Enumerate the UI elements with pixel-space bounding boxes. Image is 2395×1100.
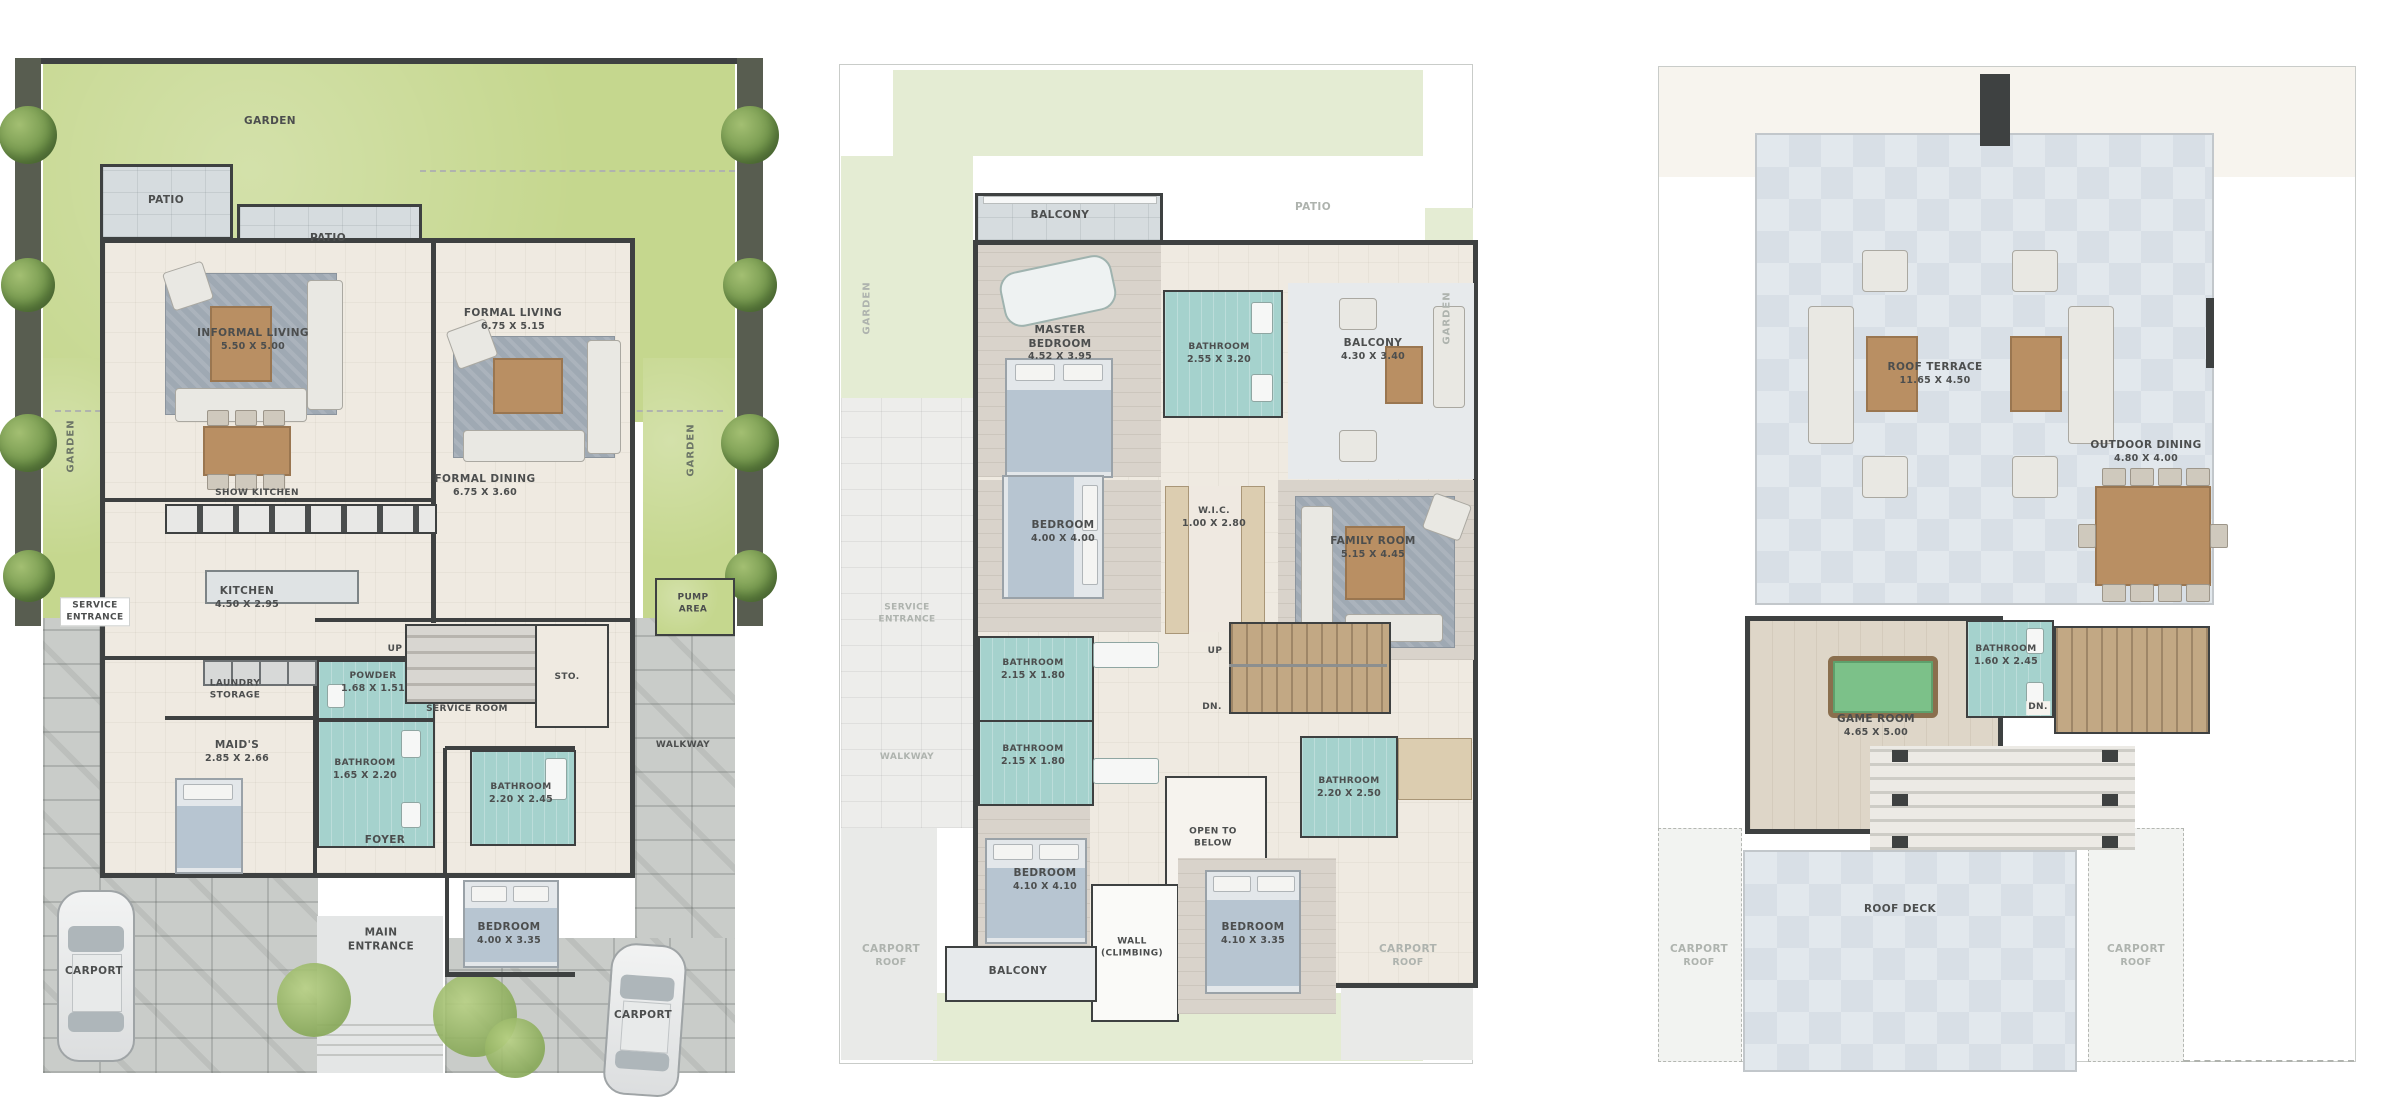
pillow (993, 844, 1033, 860)
label-bathroom-roof: BATHROOM1.60 X 2.45 (1973, 644, 2039, 668)
vanity (1093, 758, 1159, 784)
bush (485, 1018, 545, 1078)
chair (2158, 468, 2182, 486)
label-wic: W.I.C.1.00 X 2.80 (1182, 506, 1246, 530)
tree (3, 550, 55, 602)
label-carport-roof-left: CARPORTROOF (1667, 943, 1731, 969)
label-carport-roof-left: CARPORTROOF (856, 943, 926, 969)
label-master-bathroom: BATHROOM2.55 X 3.20 (1187, 342, 1251, 366)
pillow (1063, 364, 1103, 381)
walkway-right (635, 618, 735, 943)
balcony-railing (983, 196, 1157, 204)
outdoor-dining-table (2095, 486, 2211, 586)
floor-plan-ground: GARDEN GARDEN GARDEN PATIO PATIO INFORMA… (15, 58, 763, 1083)
show-kitchen-counter (165, 504, 437, 534)
label-carport-roof-right: CARPORTROOF (1373, 943, 1443, 969)
coffee-table (493, 358, 563, 414)
chair (2130, 468, 2154, 486)
pillow (1213, 876, 1251, 892)
label-carport-roof-right: CARPORTROOF (2104, 943, 2168, 969)
pergola-post (1892, 836, 1908, 848)
sofa (463, 430, 585, 462)
stairs-first (1229, 622, 1391, 714)
label-wall-climbing: WALL (CLIMBING) (1097, 936, 1167, 959)
tree (721, 414, 779, 472)
wall-stub (2206, 298, 2214, 368)
label-bedroom-left: BEDROOM4.00 X 4.00 (1031, 519, 1095, 545)
tree (723, 258, 777, 312)
label-pump-area: PUMP AREA (669, 592, 717, 615)
chair (2186, 468, 2210, 486)
label-garden-left: GARDEN (66, 419, 77, 472)
label-foyer: FOYER (365, 834, 406, 848)
billiard-table (1828, 656, 1938, 718)
rear-window (614, 1050, 670, 1072)
stairs-up (405, 624, 537, 704)
pergola-post (2102, 836, 2118, 848)
label-garden-ghost-left: GARDEN (862, 281, 873, 334)
pillow (1015, 364, 1055, 381)
blanket (177, 806, 241, 868)
label-up: UP (388, 644, 403, 656)
label-main-entrance: MAIN ENTRANCE (336, 926, 426, 953)
label-family-room: FAMILY ROOM5.15 X 4.45 (1330, 535, 1416, 561)
label-informal-living: INFORMAL LIVING5.50 X 5.00 (197, 327, 309, 353)
vanity (1093, 642, 1159, 668)
pergola-post (2102, 750, 2118, 762)
label-show-kitchen: SHOW KITCHEN (215, 488, 299, 500)
car-roof (72, 954, 121, 1012)
label-sto: STO. (554, 672, 579, 684)
label-formal-living: FORMAL LIVING6.75 X 5.15 (464, 307, 562, 333)
pillow (1257, 876, 1295, 892)
label-garden-ghost-right: GARDEN (1442, 291, 1453, 344)
wall (443, 748, 447, 876)
label-balcony-bottom: BALCONY (989, 965, 1048, 979)
label-balcony-top: BALCONY (1031, 209, 1090, 223)
label-bedroom-bottom-left: BEDROOM4.10 X 4.10 (1013, 867, 1077, 893)
pillow (183, 784, 233, 800)
label-bathroom-right: BATHROOM2.20 X 2.50 (1317, 776, 1381, 800)
sofa (587, 340, 621, 454)
chair (2102, 468, 2126, 486)
chair (2078, 524, 2096, 548)
label-kitchen: KITCHEN4.50 X 2.95 (215, 585, 279, 611)
label-garden-right: GARDEN (686, 423, 697, 476)
label-roof-deck: ROOF DECK (1864, 903, 1936, 917)
label-maids-bathroom: BATHROOM1.65 X 2.20 (333, 758, 397, 782)
stairs-roof (2054, 626, 2210, 734)
windshield (619, 974, 675, 1002)
label-bathroom-2: BATHROOM2.15 X 1.80 (1001, 744, 1065, 768)
tree (0, 106, 57, 164)
floor-plan-first: BALCONY PATIO GARDEN GARDEN SERVICE ENTR… (833, 58, 1480, 1080)
blanket (1007, 390, 1111, 472)
label-master-bedroom: MASTER BEDROOM4.52 X 3.95 (1015, 324, 1105, 364)
label-bedroom-ground: BEDROOM4.00 X 3.35 (477, 921, 541, 947)
pergola-deck (1870, 746, 2135, 850)
label-dn-roof: DN. (2026, 701, 2050, 715)
sofa (1301, 506, 1333, 628)
property-dashed-line-2 (420, 170, 735, 172)
label-outdoor-dining: OUTDOOR DINING4.80 X 4.00 (2090, 439, 2201, 465)
toilet (1251, 374, 1273, 402)
label-walkway: WALKWAY (656, 740, 710, 752)
label-bedroom-bottom-right: BEDROOM4.10 X 3.35 (1221, 921, 1285, 947)
stair-rail (1229, 664, 1387, 667)
label-formal-dining: FORMAL DINING6.75 X 3.60 (434, 473, 535, 499)
chair (2130, 584, 2154, 602)
label-carport-right: CARPORT (614, 1009, 672, 1023)
boundary-wall-top (41, 58, 737, 64)
tree (0, 414, 57, 472)
label-service-entrance-ghost: SERVICE ENTRANCE (875, 602, 939, 625)
label-carport-left: CARPORT (65, 965, 123, 979)
floor-plan-roof: ROOF TERRACE11.65 X 4.50 OUTDOOR DINING4… (1650, 58, 2365, 1080)
wall (445, 972, 575, 977)
chair (263, 410, 285, 426)
pillow (471, 886, 507, 902)
label-bathroom-1: BATHROOM2.15 X 1.80 (1001, 658, 1065, 682)
label-patio-right: PATIO (310, 232, 346, 246)
floor-plan-sheet: GARDEN GARDEN GARDEN PATIO PATIO INFORMA… (0, 0, 2395, 1100)
chair (207, 410, 229, 426)
outdoor-chair (2012, 456, 2058, 498)
breakfast-table (203, 426, 291, 476)
label-maids: MAID'S2.85 X 2.66 (205, 739, 269, 765)
tree (721, 106, 779, 164)
garden-left-strip (43, 358, 103, 633)
pillow (1039, 844, 1079, 860)
outdoor-chair (1862, 456, 1908, 498)
label-open-to-below: OPEN TO BELOW (1181, 826, 1245, 849)
outdoor-chair (1339, 430, 1377, 462)
toilet (401, 802, 421, 828)
label-dn: DN. (1202, 702, 1222, 714)
outdoor-sofa (1808, 306, 1854, 444)
label-powder: POWDER1.68 X 1.51 (341, 671, 405, 695)
label-laundry-storage: LAUNDRY STORAGE (200, 678, 270, 701)
label-up: UP (1208, 646, 1223, 658)
roof-deck (1743, 850, 2077, 1072)
label-service-entrance: SERVICE ENTRANCE (60, 597, 130, 626)
chair (235, 410, 257, 426)
sink (1251, 302, 1273, 334)
wall-stub (1980, 74, 2010, 146)
garden-wash-top (893, 70, 1423, 156)
label-bathroom-ground: BATHROOM2.20 X 2.45 (489, 782, 553, 806)
coffee-table (2010, 336, 2062, 412)
label-garden-top: GARDEN (244, 115, 296, 129)
pergola-post (2102, 794, 2118, 806)
label-service-room: SERVICE ROOM (426, 704, 508, 716)
tree (1, 258, 55, 312)
wall (315, 618, 635, 622)
chair (2210, 524, 2228, 548)
label-patio-left: PATIO (148, 194, 184, 208)
outdoor-chair (1339, 298, 1377, 330)
pergola-post (1892, 794, 1908, 806)
pillow (513, 886, 549, 902)
closet (1398, 738, 1472, 800)
pillow (1082, 539, 1098, 585)
windshield (68, 926, 124, 952)
outdoor-sofa (2068, 306, 2114, 444)
label-balcony-right: BALCONY4.30 X 3.40 (1341, 337, 1405, 363)
rear-window (68, 1012, 124, 1032)
master-bed (1005, 358, 1113, 478)
label-walkway-ghost: WALKWAY (880, 752, 934, 764)
label-roof-terrace: ROOF TERRACE11.65 X 4.50 (1887, 361, 1982, 387)
sink (401, 730, 421, 758)
chair (2158, 584, 2182, 602)
wall (431, 238, 436, 623)
label-game-room: GAME ROOM4.65 X 5.00 (1837, 713, 1915, 739)
chair (2186, 584, 2210, 602)
chair (2102, 584, 2126, 602)
maid-bed (175, 778, 243, 874)
wall (445, 876, 449, 976)
label-patio-ghost: PATIO (1295, 201, 1331, 215)
dashed-line (2184, 1060, 2354, 1062)
outdoor-chair (2012, 250, 2058, 292)
pergola-post (1892, 750, 1908, 762)
bush (277, 963, 351, 1037)
sofa (307, 280, 343, 410)
outdoor-chair (1862, 250, 1908, 292)
